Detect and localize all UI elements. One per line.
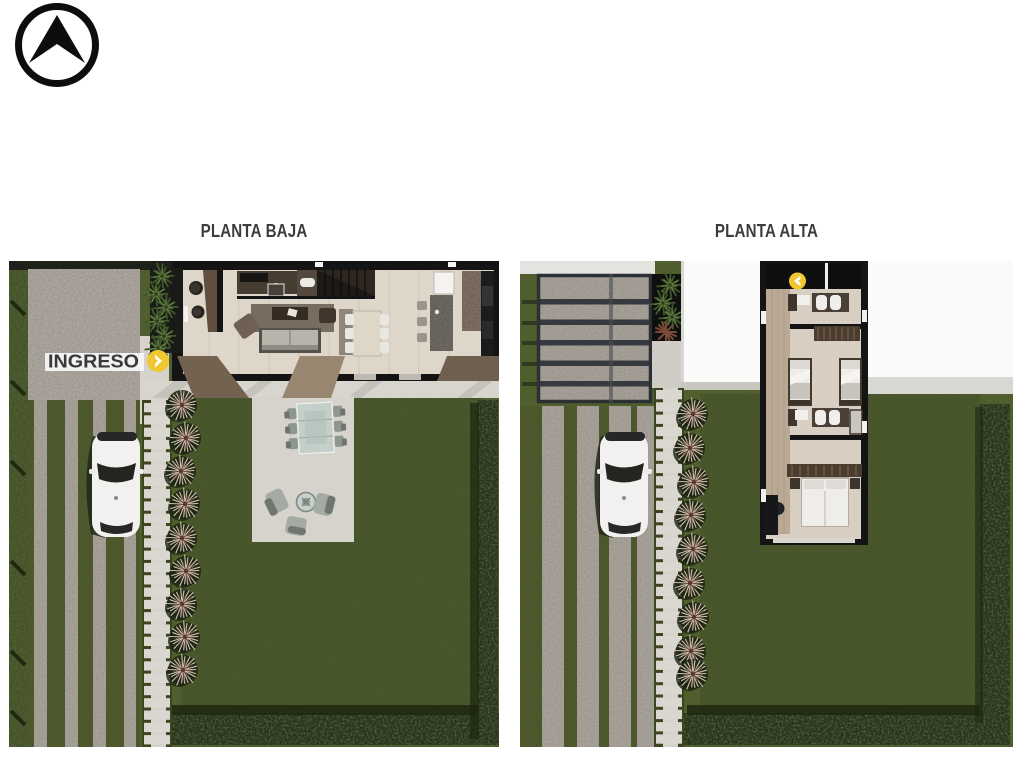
svg-text:INGRESO: INGRESO bbox=[48, 352, 139, 372]
